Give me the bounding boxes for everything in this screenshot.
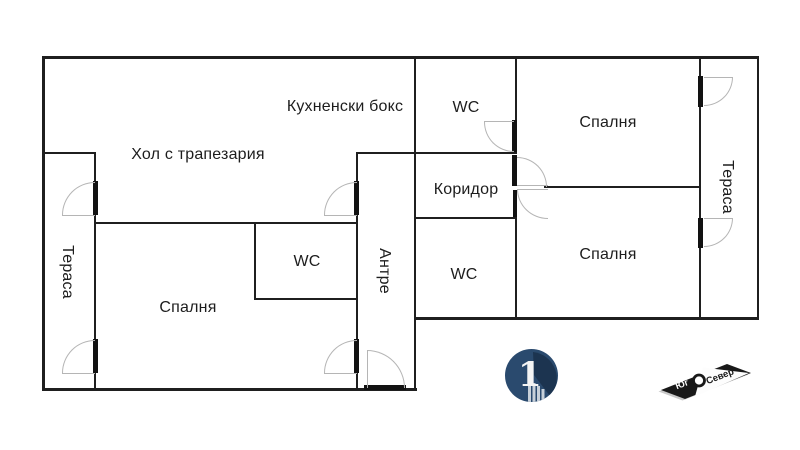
wall-hall-left-a (356, 152, 358, 181)
room-label-kitchen: Кухненски бокс (287, 98, 403, 116)
door-arc (62, 182, 95, 215)
room-label-bedroom-left: Спалня (159, 299, 216, 317)
agency-logo: 1 (504, 348, 559, 403)
wall-terrace-left-b (94, 215, 96, 339)
floorplan-canvas: Кухненски бокс Хол с трапезария Тераса С… (0, 0, 800, 450)
wall-terrace-left-a (94, 152, 96, 181)
door-arc (517, 157, 547, 187)
compass-marker: Юг Север (653, 357, 755, 403)
room-label-terrace-right: Тераса (718, 160, 736, 214)
room-label-entry-hall: Антре (375, 248, 393, 294)
wall-outer-bottom-right (414, 317, 760, 320)
door-leaf (517, 189, 548, 190)
door-jamb (512, 155, 517, 186)
wall-bedroom-left-top (94, 222, 358, 225)
door-jamb (698, 218, 704, 248)
entrance-door-arc (367, 350, 405, 388)
door-leaf (324, 373, 357, 374)
wall-wc-left-bottom (254, 298, 358, 300)
door-arc (324, 340, 357, 373)
wall-terrace-right-b (699, 107, 701, 218)
wall-terrace-right-c (699, 248, 701, 318)
number-one-building-icon: 1 (504, 348, 559, 403)
entrance-door-leaf (367, 350, 368, 388)
wall-terrace-right-a (699, 56, 701, 76)
door-leaf (324, 215, 357, 216)
wall-bedrooms-divider (544, 186, 700, 189)
wall-outer-left (42, 56, 45, 391)
room-label-wc-left: WC (293, 253, 320, 271)
door-arc (62, 340, 95, 373)
wall-center-vertical (414, 56, 417, 391)
wall-hall-left-b (356, 215, 358, 339)
room-label-wc-middle: WC (450, 266, 477, 284)
room-label-living-room: Хол с трапезария (131, 146, 265, 164)
wall-terrace-left-c (94, 373, 96, 390)
wall-outer-top (42, 56, 759, 59)
room-label-terrace-left: Тераса (58, 245, 76, 299)
wall-terrace-left-top (42, 152, 95, 154)
wall-hall-top (356, 152, 416, 154)
door-leaf (62, 215, 95, 216)
room-label-bedroom-top-right: Спалня (579, 114, 636, 132)
door-arc (704, 218, 733, 247)
room-label-corridor: Коридор (434, 181, 499, 199)
room-label-bedroom-bottom-right: Спалня (579, 246, 636, 264)
compass-icon: Юг Север (653, 357, 755, 403)
compass-pivot (694, 375, 705, 386)
door-arc (517, 189, 548, 219)
room-label-wc-top: WC (452, 99, 479, 117)
wall-hall-left-c (356, 373, 358, 390)
wall-corridor-right-upper (515, 56, 517, 120)
wall-corridor-right-lower (515, 218, 517, 318)
door-leaf (704, 77, 733, 78)
wall-wc-top-bottom (414, 152, 518, 154)
door-jamb (513, 190, 517, 217)
wall-outer-right (757, 56, 760, 320)
door-jamb (698, 76, 704, 107)
door-leaf (704, 218, 733, 219)
wall-wc-left-side (254, 222, 256, 300)
door-leaf (62, 373, 95, 374)
wall-outer-bottom-left (42, 388, 417, 391)
door-arc (484, 122, 514, 152)
door-leaf (517, 185, 548, 186)
door-arc (324, 182, 357, 215)
door-arc (704, 77, 733, 106)
door-leaf (484, 121, 514, 122)
wall-corridor-bottom (414, 217, 518, 220)
logo-number: 1 (518, 355, 542, 395)
